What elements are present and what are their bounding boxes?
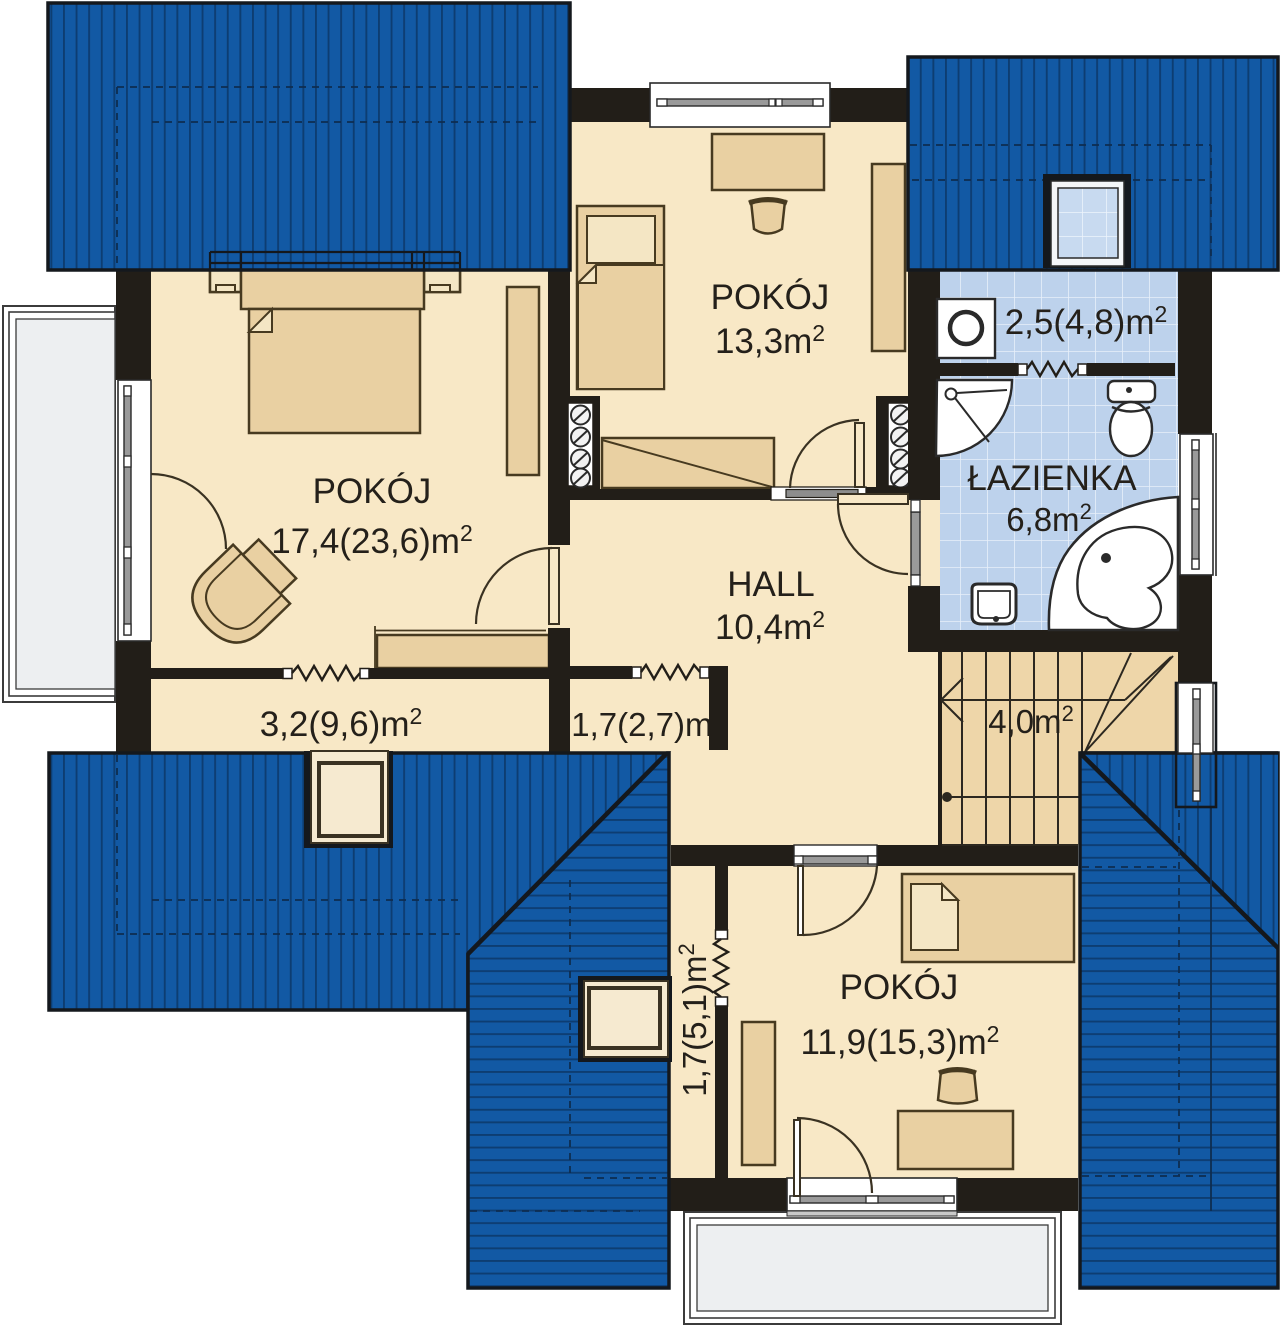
svg-text:11,9(15,3)m2: 11,9(15,3)m2 [801, 1021, 1000, 1062]
svg-text:3,2(9,6)m2: 3,2(9,6)m2 [260, 703, 423, 744]
svg-text:POKÓJ: POKÓJ [840, 968, 959, 1007]
svg-text:4,0m2: 4,0m2 [988, 701, 1074, 740]
svg-text:6,8m2: 6,8m2 [1006, 499, 1092, 538]
svg-text:POKÓJ: POKÓJ [711, 278, 830, 317]
svg-text:ŁAZIENKA: ŁAZIENKA [967, 459, 1137, 498]
svg-text:1,7(5,1)m2: 1,7(5,1)m2 [674, 943, 713, 1096]
svg-text:HALL: HALL [727, 565, 815, 604]
svg-text:2,5(4,8)m2: 2,5(4,8)m2 [1005, 301, 1168, 342]
svg-text:1,7(2,7)m2: 1,7(2,7)m2 [571, 704, 724, 743]
svg-text:17,4(23,6)m2: 17,4(23,6)m2 [271, 520, 473, 561]
svg-text:10,4m2: 10,4m2 [715, 606, 825, 647]
svg-text:13,3m2: 13,3m2 [715, 320, 825, 361]
svg-text:POKÓJ: POKÓJ [313, 472, 432, 511]
